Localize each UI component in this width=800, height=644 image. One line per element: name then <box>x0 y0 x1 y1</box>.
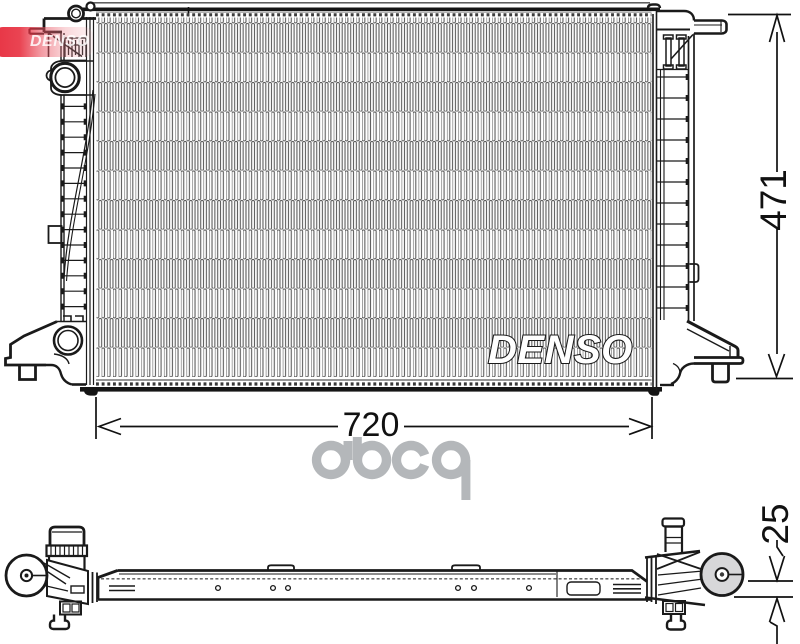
svg-text:DENSO: DENSO <box>488 328 633 372</box>
svg-text:25: 25 <box>755 503 796 544</box>
svg-text:471: 471 <box>753 169 794 231</box>
